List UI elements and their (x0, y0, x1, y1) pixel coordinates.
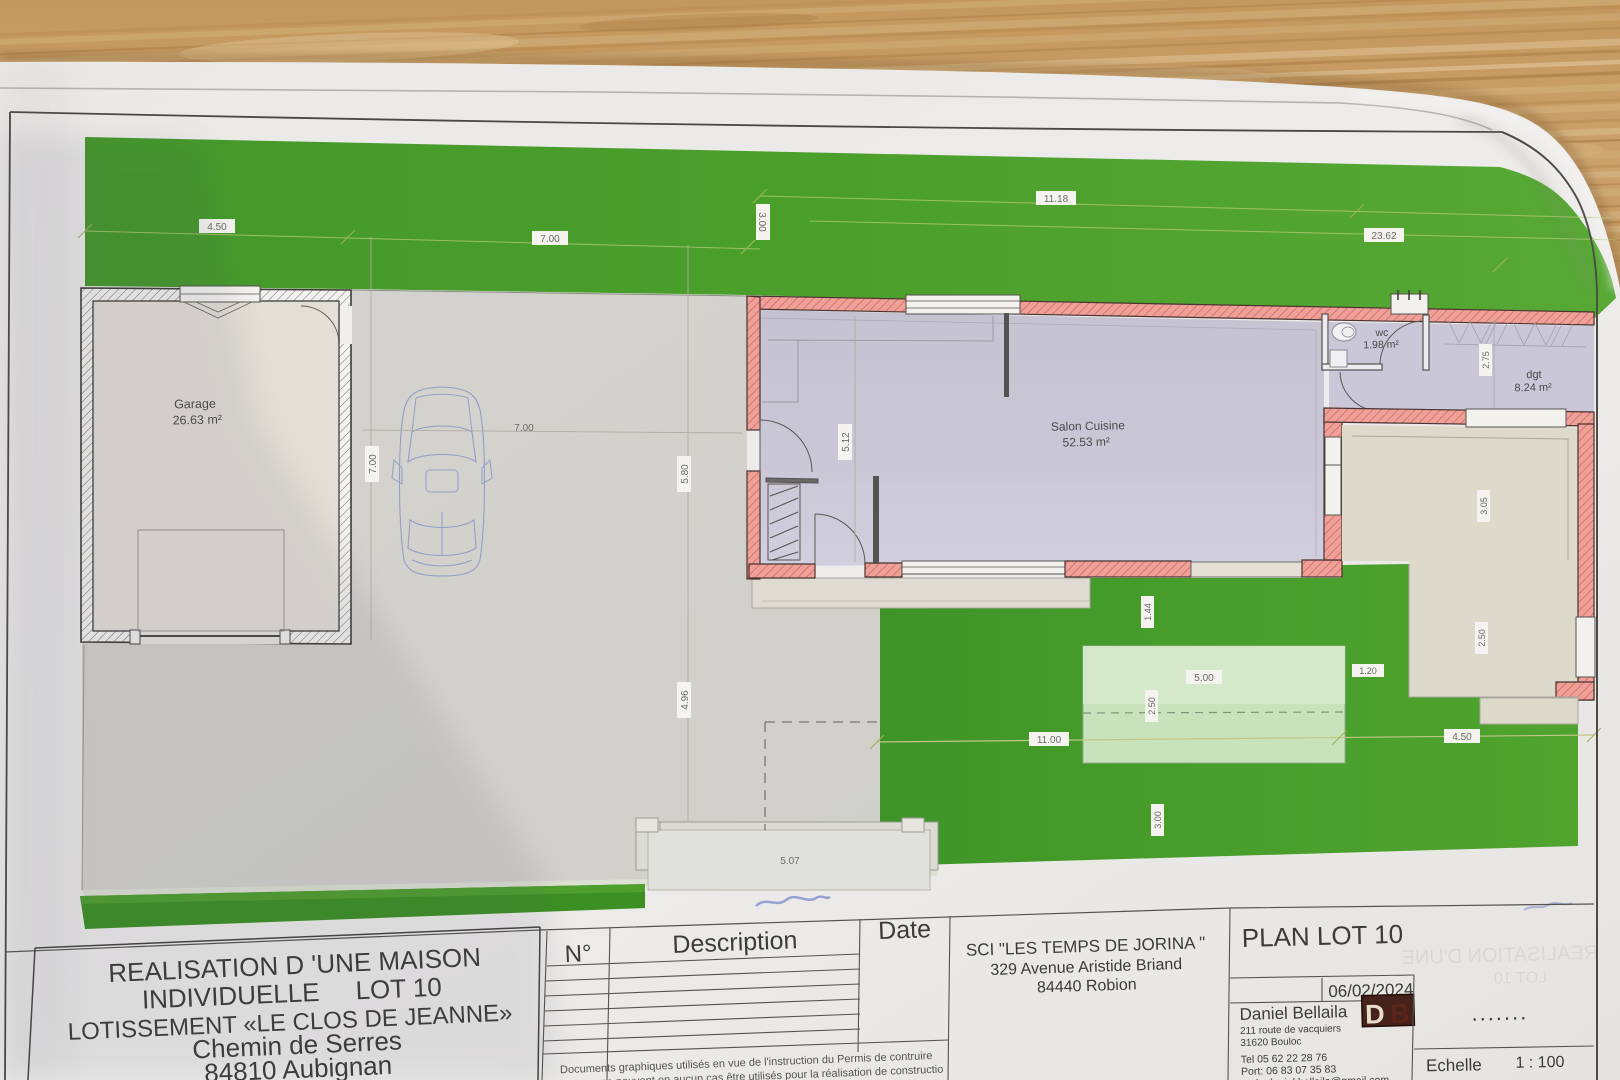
svg-text:84440 Robion: 84440 Robion (1037, 976, 1137, 996)
svg-text:1.20: 1.20 (1359, 666, 1377, 676)
svg-text:LOT 10: LOT 10 (1494, 969, 1548, 987)
svg-text:wc: wc (1374, 327, 1388, 339)
svg-text:5.80: 5.80 (680, 464, 691, 484)
svg-text:5.00: 5.00 (1194, 673, 1214, 684)
svg-text:7.00: 7.00 (540, 234, 560, 245)
svg-text:1.44: 1.44 (1143, 603, 1153, 621)
svg-text:7.00: 7.00 (514, 423, 534, 434)
svg-text:2.75: 2.75 (1481, 351, 1491, 369)
svg-text:5.07: 5.07 (780, 856, 800, 867)
svg-text:4.50: 4.50 (1452, 732, 1472, 743)
svg-text:2.50: 2.50 (1147, 697, 1157, 715)
svg-text:31620 Bouloc: 31620 Bouloc (1240, 1036, 1301, 1049)
svg-text:Salon Cuisine: Salon Cuisine (1051, 418, 1126, 434)
svg-text:Daniel Bellaila: Daniel Bellaila (1239, 1002, 1348, 1024)
svg-text:1 : 100: 1 : 100 (1515, 1054, 1564, 1072)
svg-text:11.00: 11.00 (1037, 735, 1062, 746)
svg-text:Date: Date (878, 915, 932, 945)
svg-text:1.98 m²: 1.98 m² (1363, 339, 1399, 352)
svg-text:7.00: 7.00 (368, 454, 379, 474)
svg-text:PLAN LOT 10: PLAN LOT 10 (1241, 919, 1403, 953)
svg-text:D: D (1365, 999, 1385, 1030)
svg-text:3.00: 3.00 (1153, 811, 1163, 829)
svg-text:23.62: 23.62 (1371, 231, 1396, 242)
svg-text:Echelle: Echelle (1426, 1055, 1482, 1075)
svg-text:8.24 m²: 8.24 m² (1514, 382, 1552, 395)
svg-text:4.96: 4.96 (680, 690, 691, 710)
svg-text:B: B (1390, 998, 1410, 1029)
svg-text:dgt: dgt (1526, 369, 1542, 381)
svg-text:52.53 m²: 52.53 m² (1062, 435, 1110, 450)
svg-text:2.50: 2.50 (1477, 629, 1487, 647)
svg-text:3.05: 3.05 (1479, 497, 1489, 515)
svg-text:11.18: 11.18 (1044, 194, 1069, 205)
svg-text:5.12: 5.12 (841, 432, 852, 452)
svg-text:N°: N° (564, 940, 592, 968)
svg-text:.......: ....... (1471, 999, 1528, 1025)
svg-text:3.00: 3.00 (756, 212, 767, 232)
svg-text:Description: Description (672, 926, 798, 959)
